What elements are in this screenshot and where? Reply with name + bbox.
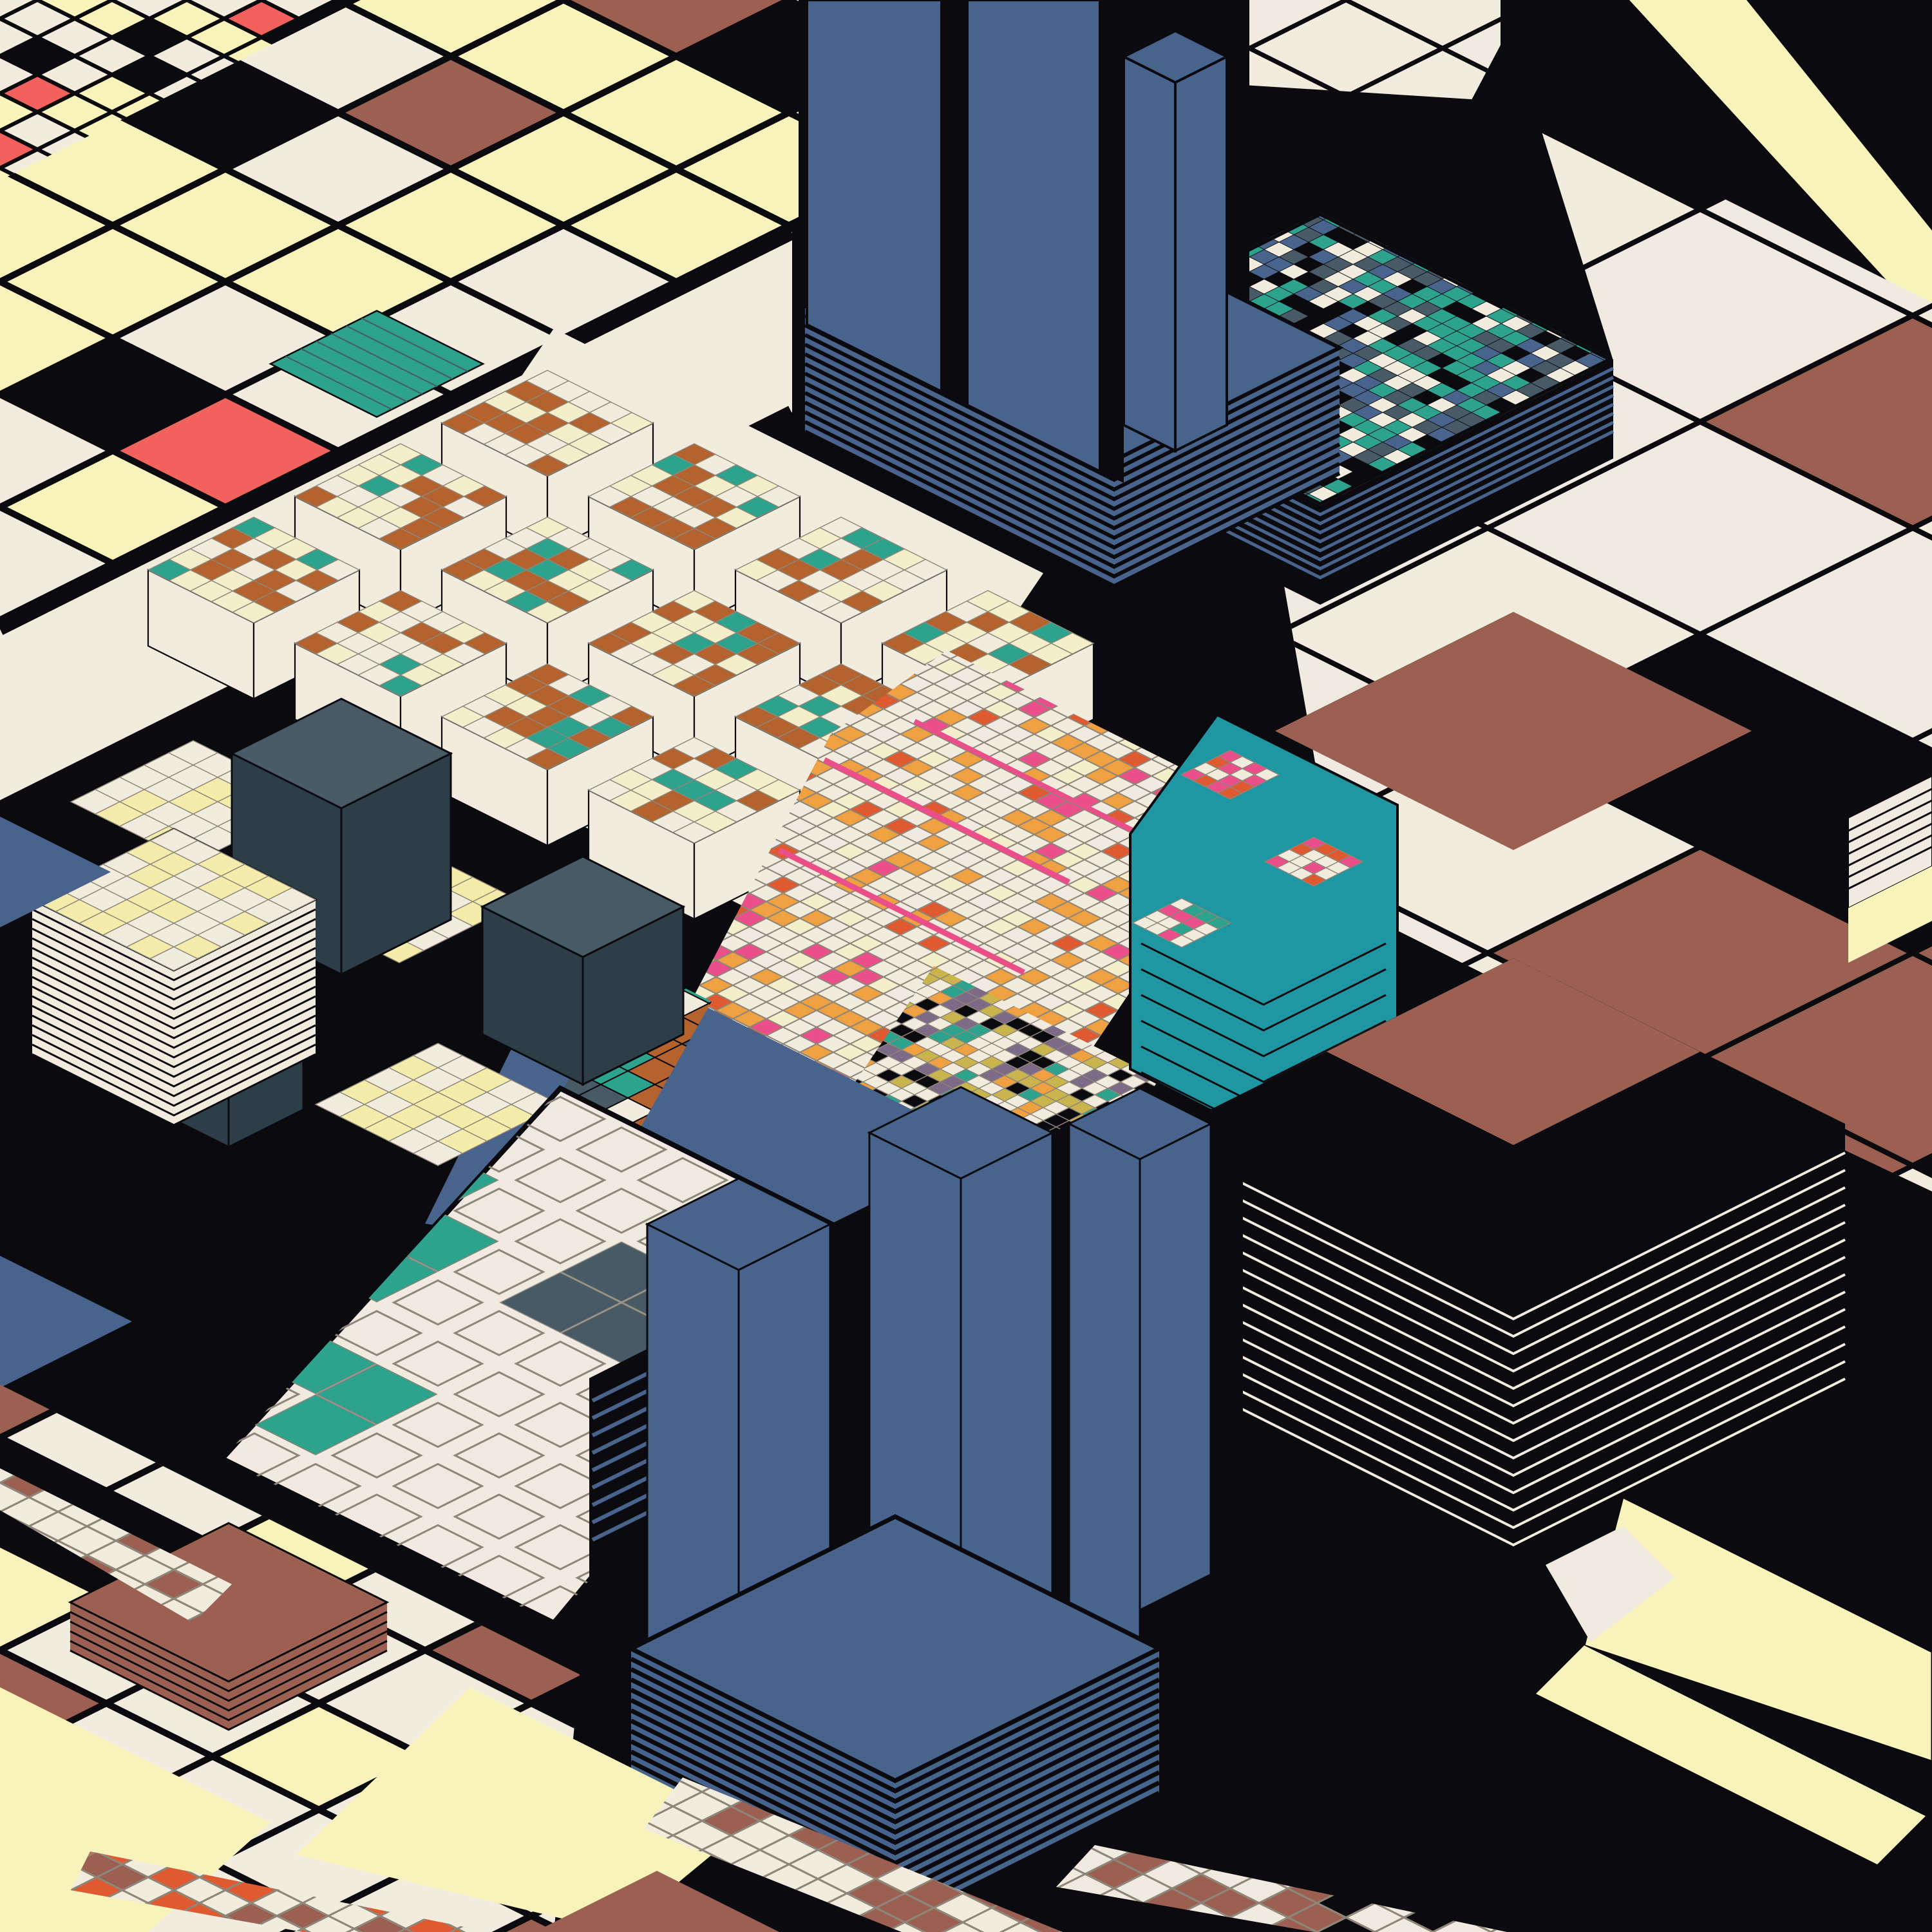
bottom-tower-c-left xyxy=(1069,1124,1140,1639)
slate-cube-mid xyxy=(482,857,683,1084)
top-tower-b-gap xyxy=(1100,0,1124,483)
artwork-canvas xyxy=(0,0,1932,1932)
bottom-tower-c-right xyxy=(1140,1124,1211,1610)
top-tower-b xyxy=(967,0,1100,471)
top-tower-c xyxy=(1124,31,1227,451)
top-tower-a-gap xyxy=(942,0,967,404)
isometric-city-artwork xyxy=(0,0,1932,1932)
top-tower-a xyxy=(807,0,942,392)
bottom-tower-c-gap xyxy=(1211,1108,1243,1575)
